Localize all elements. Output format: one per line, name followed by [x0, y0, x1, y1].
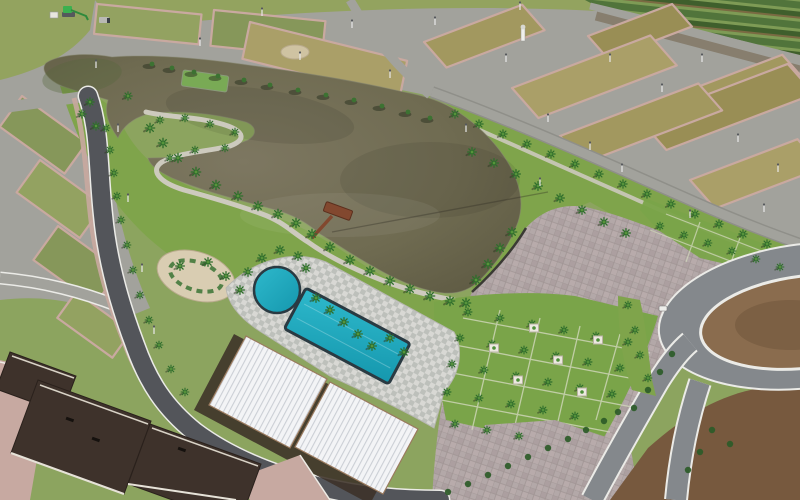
bush-icon [697, 449, 703, 455]
parked-cart [659, 306, 667, 311]
planter-box [530, 324, 539, 332]
bush-icon [685, 467, 691, 473]
bush-icon [727, 441, 733, 447]
planter-box [514, 376, 523, 384]
bush-icon [485, 472, 491, 478]
bush-icon [465, 481, 471, 487]
bush-icon [565, 436, 571, 442]
bush-icon [631, 405, 637, 411]
bush-icon [545, 445, 551, 451]
planter-box [578, 388, 587, 396]
aerial-photo-canvas [0, 0, 800, 500]
dump-truck [99, 17, 110, 23]
bush-icon [657, 369, 663, 375]
swimming-pool-round [254, 267, 300, 313]
bush-icon [505, 463, 511, 469]
water-tower [521, 25, 526, 41]
site-shed [50, 12, 58, 18]
bush-icon [525, 454, 531, 460]
bush-icon [615, 409, 621, 415]
bush-icon [645, 387, 651, 393]
planter-box [490, 344, 499, 352]
bush-icon [709, 427, 715, 433]
bush-icon [669, 351, 675, 357]
bush-icon [445, 489, 451, 495]
shore-garden-circle [281, 45, 309, 59]
bush-icon [583, 427, 589, 433]
aerial-photo-development [0, 0, 800, 500]
bush-icon [601, 418, 607, 424]
planter-box [554, 356, 563, 364]
planter-box [594, 336, 603, 344]
